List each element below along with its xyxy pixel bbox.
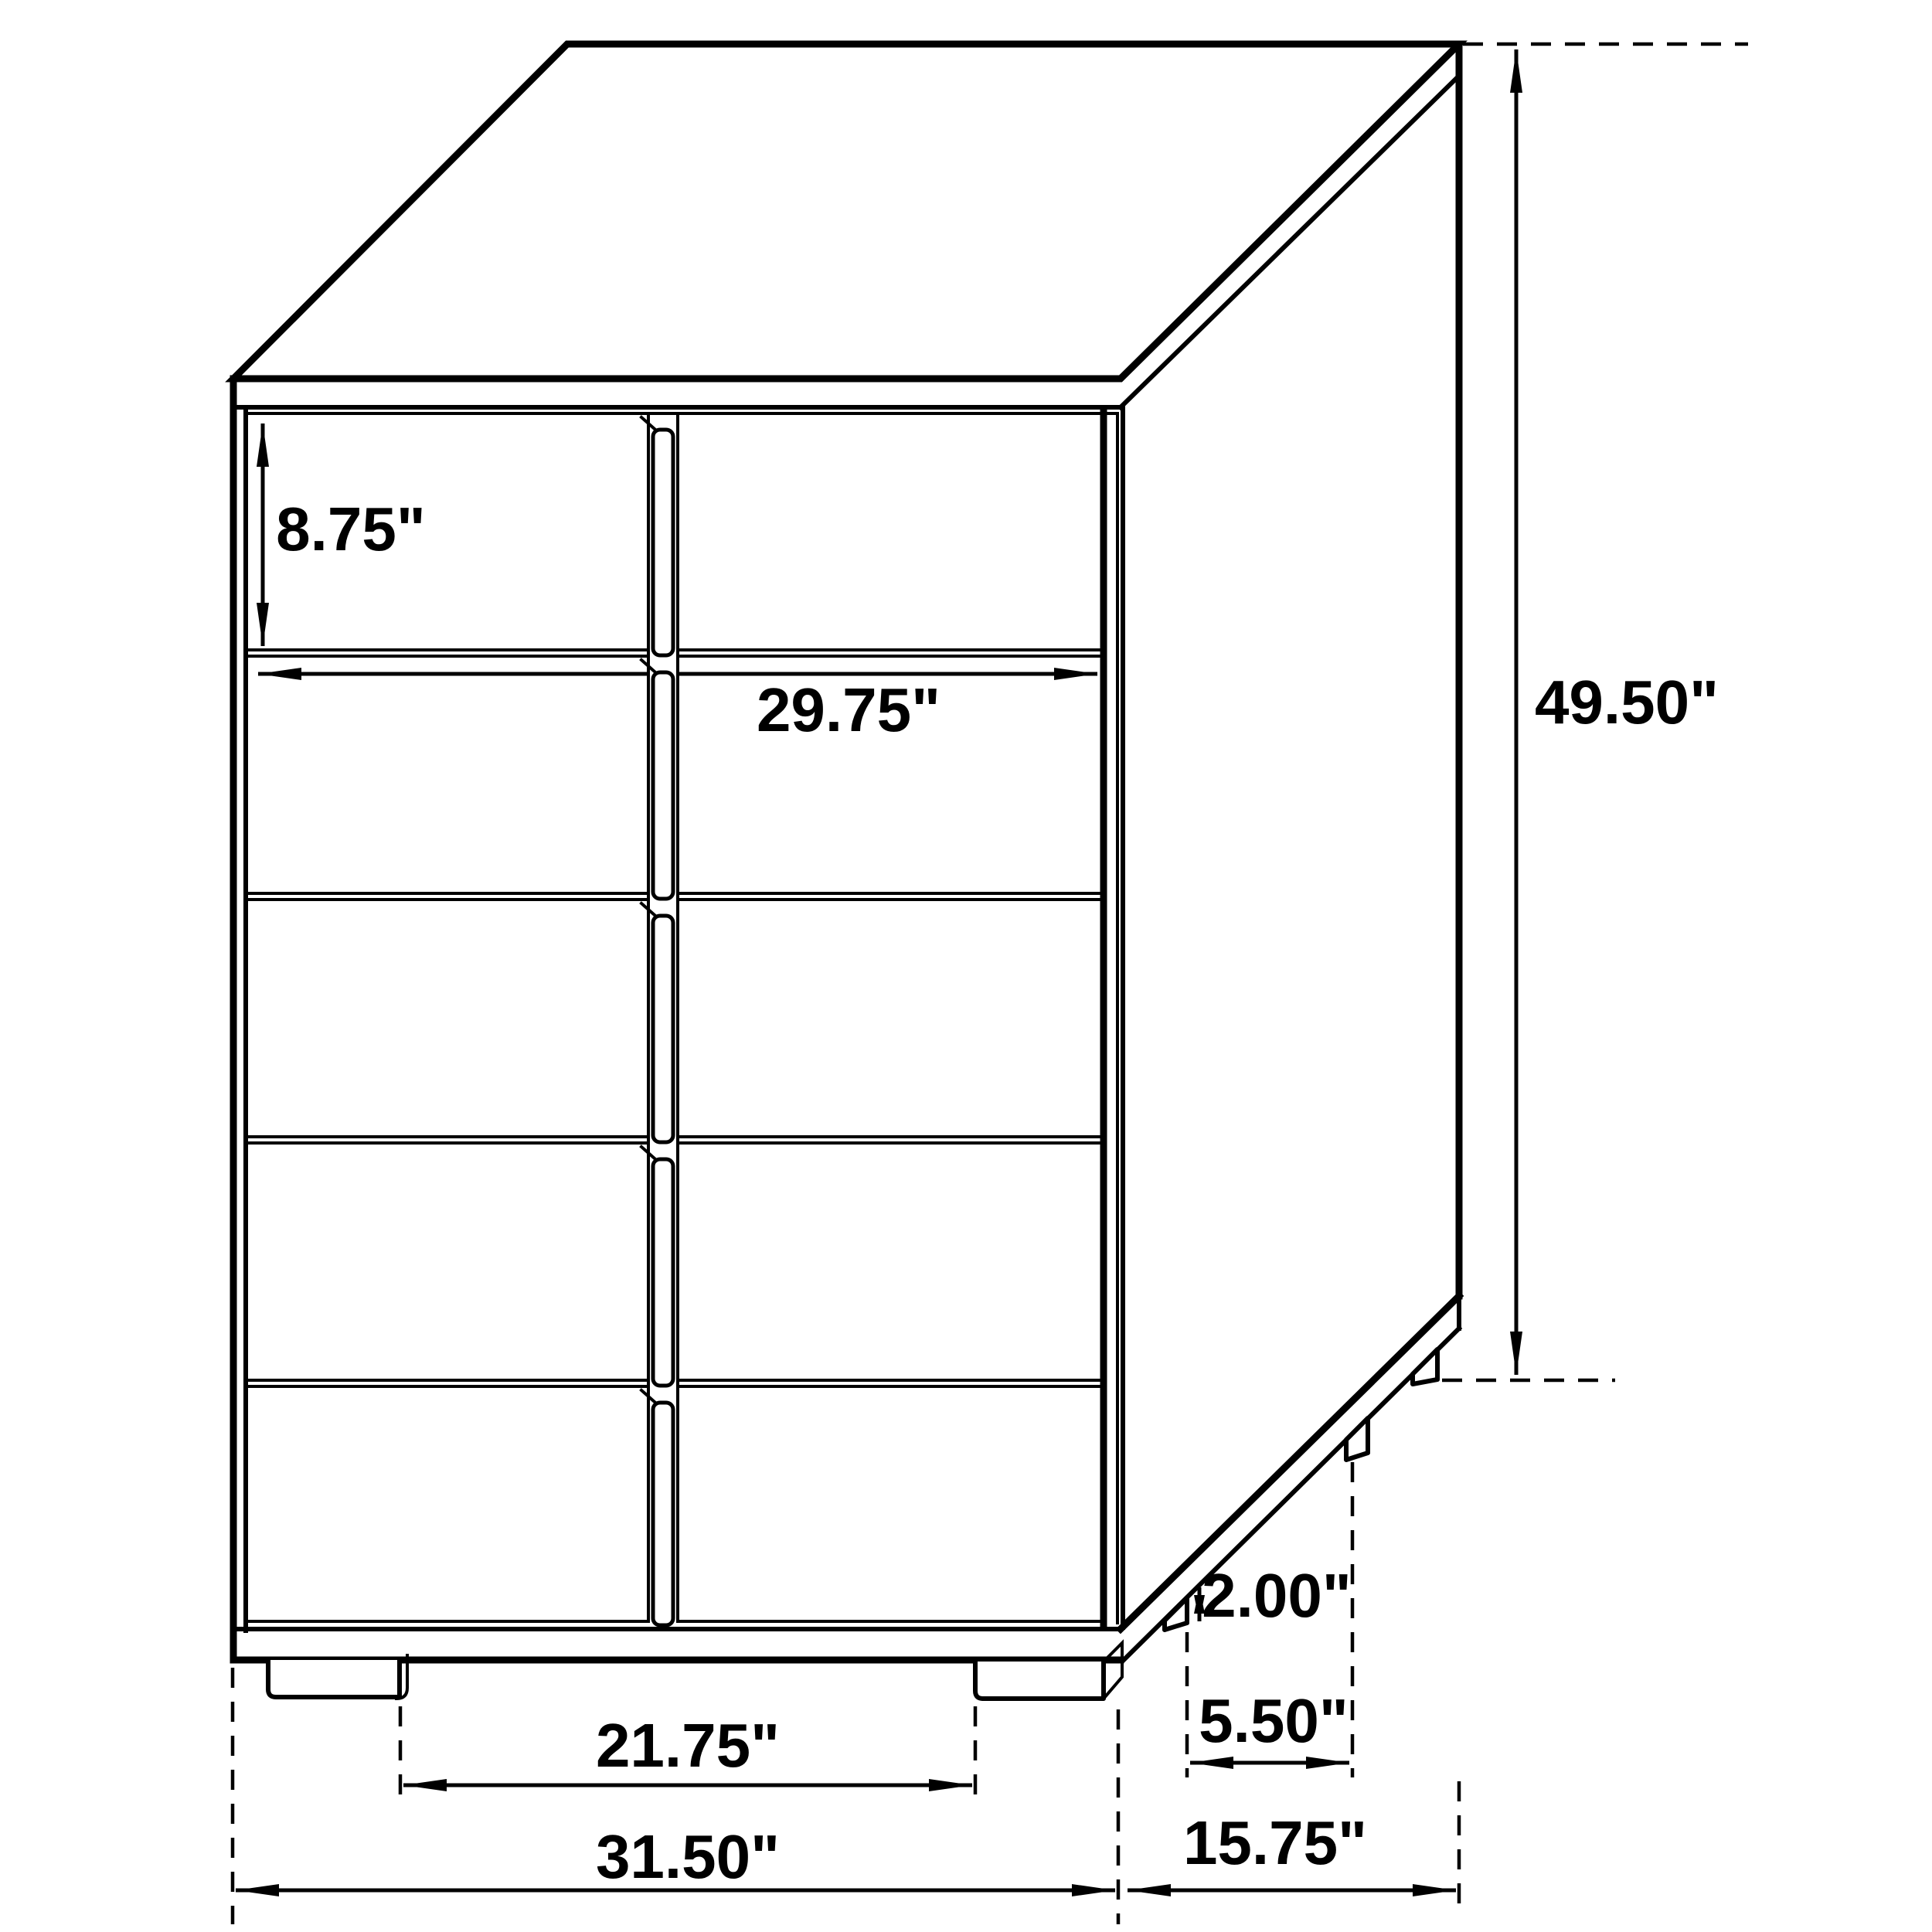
center-handles (641, 417, 673, 1625)
front-right-foot (975, 1662, 1104, 1699)
drawer-handle (653, 1403, 673, 1625)
dimension-overall-depth: 15.75" (1128, 1781, 1459, 1917)
diagram-page: 8.75" 29.75" 49.50" 2.00" 5.50" 21.75" 3… (0, 0, 1932, 1932)
drawer-handle (653, 430, 673, 655)
dimension-label: 49.50" (1535, 668, 1719, 736)
base-and-feet (233, 1349, 1437, 1699)
front-right-foot-side (1104, 1643, 1122, 1699)
dimension-label: 5.50" (1199, 1686, 1349, 1755)
drawer-grid (233, 413, 1121, 1629)
dimension-overall-width: 31.50" (233, 1668, 1118, 1924)
side-foot-back (1413, 1349, 1437, 1384)
dimension-label: 21.75" (596, 1711, 780, 1780)
dimension-overall-height: 49.50" (1442, 44, 1748, 1380)
front-left-foot (268, 1660, 400, 1697)
chest-dimension-diagram: 8.75" 29.75" 49.50" 2.00" 5.50" 21.75" 3… (0, 0, 1932, 1932)
side-foot-middle (1346, 1418, 1368, 1460)
drawer-handle (653, 916, 673, 1142)
dimension-foot-height: 2.00" (1199, 1561, 1352, 1630)
dimension-label: 2.00" (1202, 1561, 1352, 1630)
chest-body (233, 44, 1459, 1662)
dimension-drawer-height: 8.75" (263, 423, 426, 646)
dimension-front-feet-spacing: 21.75" (400, 1706, 975, 1802)
dimension-label: 29.75" (757, 675, 940, 744)
side-foot-front (1165, 1598, 1187, 1630)
top-face (233, 44, 1459, 379)
drawer-handle (653, 1159, 673, 1386)
drawer-handle (653, 672, 673, 899)
dimension-label: 8.75" (276, 495, 426, 563)
dimension-label: 15.75" (1183, 1808, 1367, 1877)
dimension-label: 31.50" (596, 1822, 780, 1891)
